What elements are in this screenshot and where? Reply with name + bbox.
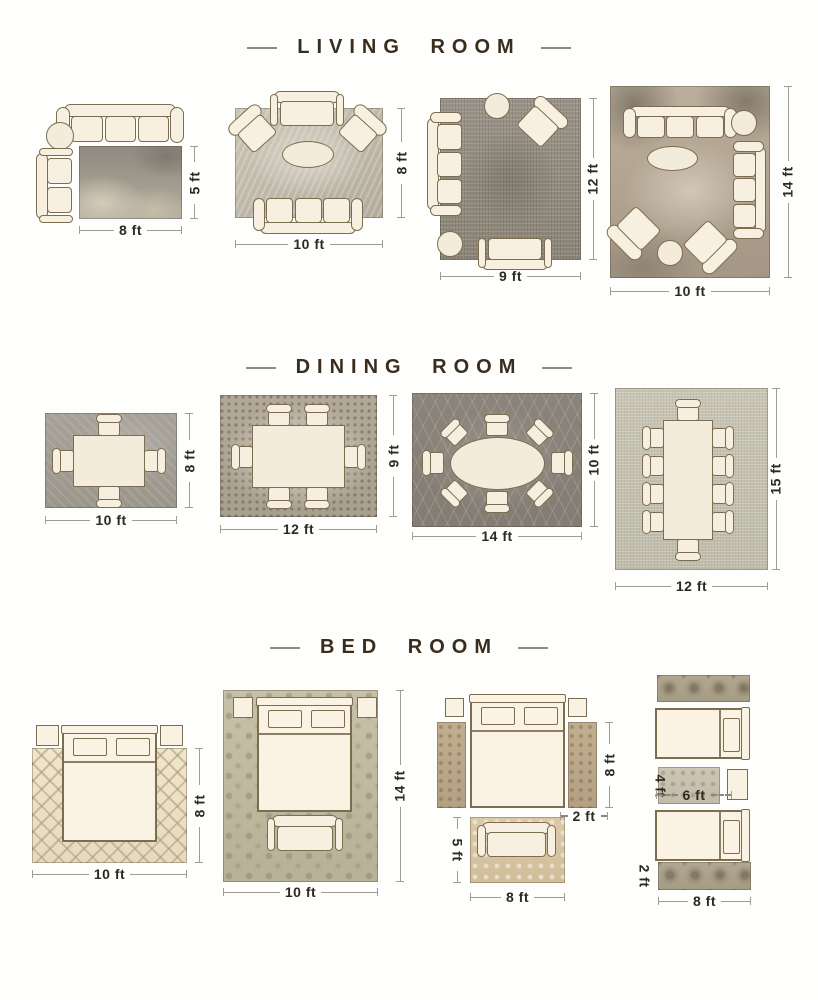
dimension-height: 10 ft [586, 393, 602, 527]
dimension-width: 10 ft [223, 884, 378, 900]
runner-rug [658, 862, 751, 890]
dimension-width: 14 ft [412, 528, 582, 544]
loveseat [478, 237, 552, 270]
dining-chair [238, 446, 253, 468]
dimension-label: 8 ft [693, 893, 716, 909]
dining-chair [712, 484, 727, 504]
dining-table [450, 437, 545, 490]
title-dash [270, 647, 300, 649]
dimension-mid-rug-width: 6 ft [656, 787, 732, 803]
rug [79, 146, 182, 219]
nightstand [445, 698, 464, 717]
runner-rug [437, 722, 466, 808]
dimension-height: 5 ft [186, 146, 202, 219]
dimension-height: 14 ft [780, 86, 796, 278]
side-table [484, 93, 510, 119]
twin-bed [655, 708, 750, 759]
dining-chair [712, 428, 727, 448]
sofa [253, 197, 363, 234]
coffee-table [647, 146, 698, 171]
dimension-width: 10 ft [235, 236, 383, 252]
dimension-label: 12 ft [585, 163, 601, 194]
dining-chair [649, 512, 664, 532]
loveseat [36, 148, 74, 223]
sofa [732, 141, 766, 239]
side-table [657, 240, 683, 266]
dimension-label: 14 ft [392, 770, 408, 801]
dining-table [73, 435, 145, 487]
dimension-width: 10 ft [610, 283, 770, 299]
title-dash [518, 647, 548, 649]
dining-chair [486, 421, 508, 436]
dining-chair [486, 491, 508, 506]
dining-chair [649, 456, 664, 476]
dimension-label: 5 ft [449, 839, 465, 862]
twin-bed [655, 810, 750, 861]
dimension-width: 8 ft [79, 222, 182, 238]
dimension-width: 12 ft [220, 521, 377, 537]
dimension-height: 12 ft [585, 98, 601, 260]
dimension-width: 10 ft [45, 512, 177, 528]
dimension-height: 9 ft [385, 395, 401, 517]
dining-chair [268, 487, 290, 502]
section-heading: LIVING ROOM [297, 36, 520, 59]
side-table [731, 110, 757, 136]
bench-loveseat [267, 815, 343, 852]
dimension-label: 10 ft [586, 444, 602, 475]
dining-chair [306, 411, 328, 426]
dining-chair [677, 406, 699, 421]
dimension-label: 10 ft [674, 283, 705, 299]
sofa [623, 106, 737, 139]
dimension-label: 10 ft [94, 866, 125, 882]
dimension-label: 10 ft [293, 236, 324, 252]
dining-chair [144, 450, 159, 472]
nightstand [36, 725, 59, 746]
runner-rug [568, 722, 597, 808]
dimension-width: 12 ft [615, 578, 768, 594]
dimension-runner-width: 2 ft [560, 808, 608, 824]
dining-chair [677, 539, 699, 554]
dining-chair [268, 411, 290, 426]
dining-table [252, 425, 345, 488]
dining-chair [712, 512, 727, 532]
dimension-runner-height: 8 ft [601, 722, 617, 808]
bed [62, 725, 157, 842]
dimension-label: 8 ft [601, 754, 617, 777]
dimension-label: 8 ft [181, 449, 197, 472]
dimension-runner-width: 8 ft [658, 893, 751, 909]
dimension-height: 8 ft [181, 413, 197, 508]
dimension-label: 14 ft [481, 528, 512, 544]
section-title-bedroom: BED ROOM [0, 636, 818, 659]
dining-chair [712, 456, 727, 476]
dining-chair [649, 428, 664, 448]
dimension-label: 8 ft [119, 222, 142, 238]
dimension-rug-height: 5 ft [449, 817, 465, 883]
side-table [437, 231, 463, 257]
coffee-table [282, 141, 334, 168]
section-heading: BED ROOM [320, 636, 498, 659]
section-title-dining: DINING ROOM [0, 356, 818, 379]
bed [257, 697, 352, 812]
loveseat [270, 91, 344, 127]
dimension-height: 14 ft [392, 690, 408, 882]
dimension-label: 10 ft [285, 884, 316, 900]
dimension-width: 10 ft [32, 866, 187, 882]
dining-chair [98, 486, 120, 501]
title-dash [542, 367, 572, 369]
rug-size-guide: LIVING ROOM 8 ft 5 ft 10 ft 8 ft [0, 0, 818, 1000]
nightstand [233, 697, 253, 718]
dining-chair [551, 452, 566, 474]
dimension-runner-height: 2 ft [636, 857, 652, 895]
dimension-height: 8 ft [393, 108, 409, 218]
runner-rug [657, 675, 750, 702]
dimension-label: 8 ft [506, 889, 529, 905]
dining-chair [429, 452, 444, 474]
dimension-height: 8 ft [191, 748, 207, 863]
dimension-label: 12 ft [676, 578, 707, 594]
dimension-label: 14 ft [780, 166, 796, 197]
dimension-label: 2 ft [636, 865, 652, 888]
title-dash [246, 367, 276, 369]
dimension-label: 15 ft [768, 463, 784, 494]
dimension-label: 8 ft [191, 794, 207, 817]
dimension-label: 12 ft [283, 521, 314, 537]
sofa [427, 112, 463, 216]
dining-chair [59, 450, 74, 472]
dining-chair [98, 421, 120, 436]
dimension-label: 9 ft [499, 268, 522, 284]
dimension-label: 10 ft [95, 512, 126, 528]
title-dash [541, 47, 571, 49]
nightstand [357, 697, 377, 718]
section-title-living: LIVING ROOM [0, 36, 818, 59]
dimension-height: 15 ft [768, 388, 784, 570]
dimension-rug-width: 8 ft [470, 889, 565, 905]
bed [470, 694, 565, 808]
dimension-label: 5 ft [186, 171, 202, 194]
nightstand [568, 698, 587, 717]
title-dash [247, 47, 277, 49]
dimension-label: 2 ft [573, 808, 596, 824]
dimension-width: 9 ft [440, 268, 581, 284]
dining-chair [306, 487, 328, 502]
dining-table [663, 420, 713, 540]
sofa [56, 104, 184, 144]
section-heading: DINING ROOM [296, 356, 523, 379]
dimension-label: 6 ft [683, 787, 706, 803]
dining-chair [649, 484, 664, 504]
dimension-label: 9 ft [385, 445, 401, 468]
bench-loveseat [477, 822, 556, 858]
dining-chair [344, 446, 359, 468]
side-table [46, 122, 74, 150]
nightstand [160, 725, 183, 746]
dimension-label: 8 ft [393, 152, 409, 175]
